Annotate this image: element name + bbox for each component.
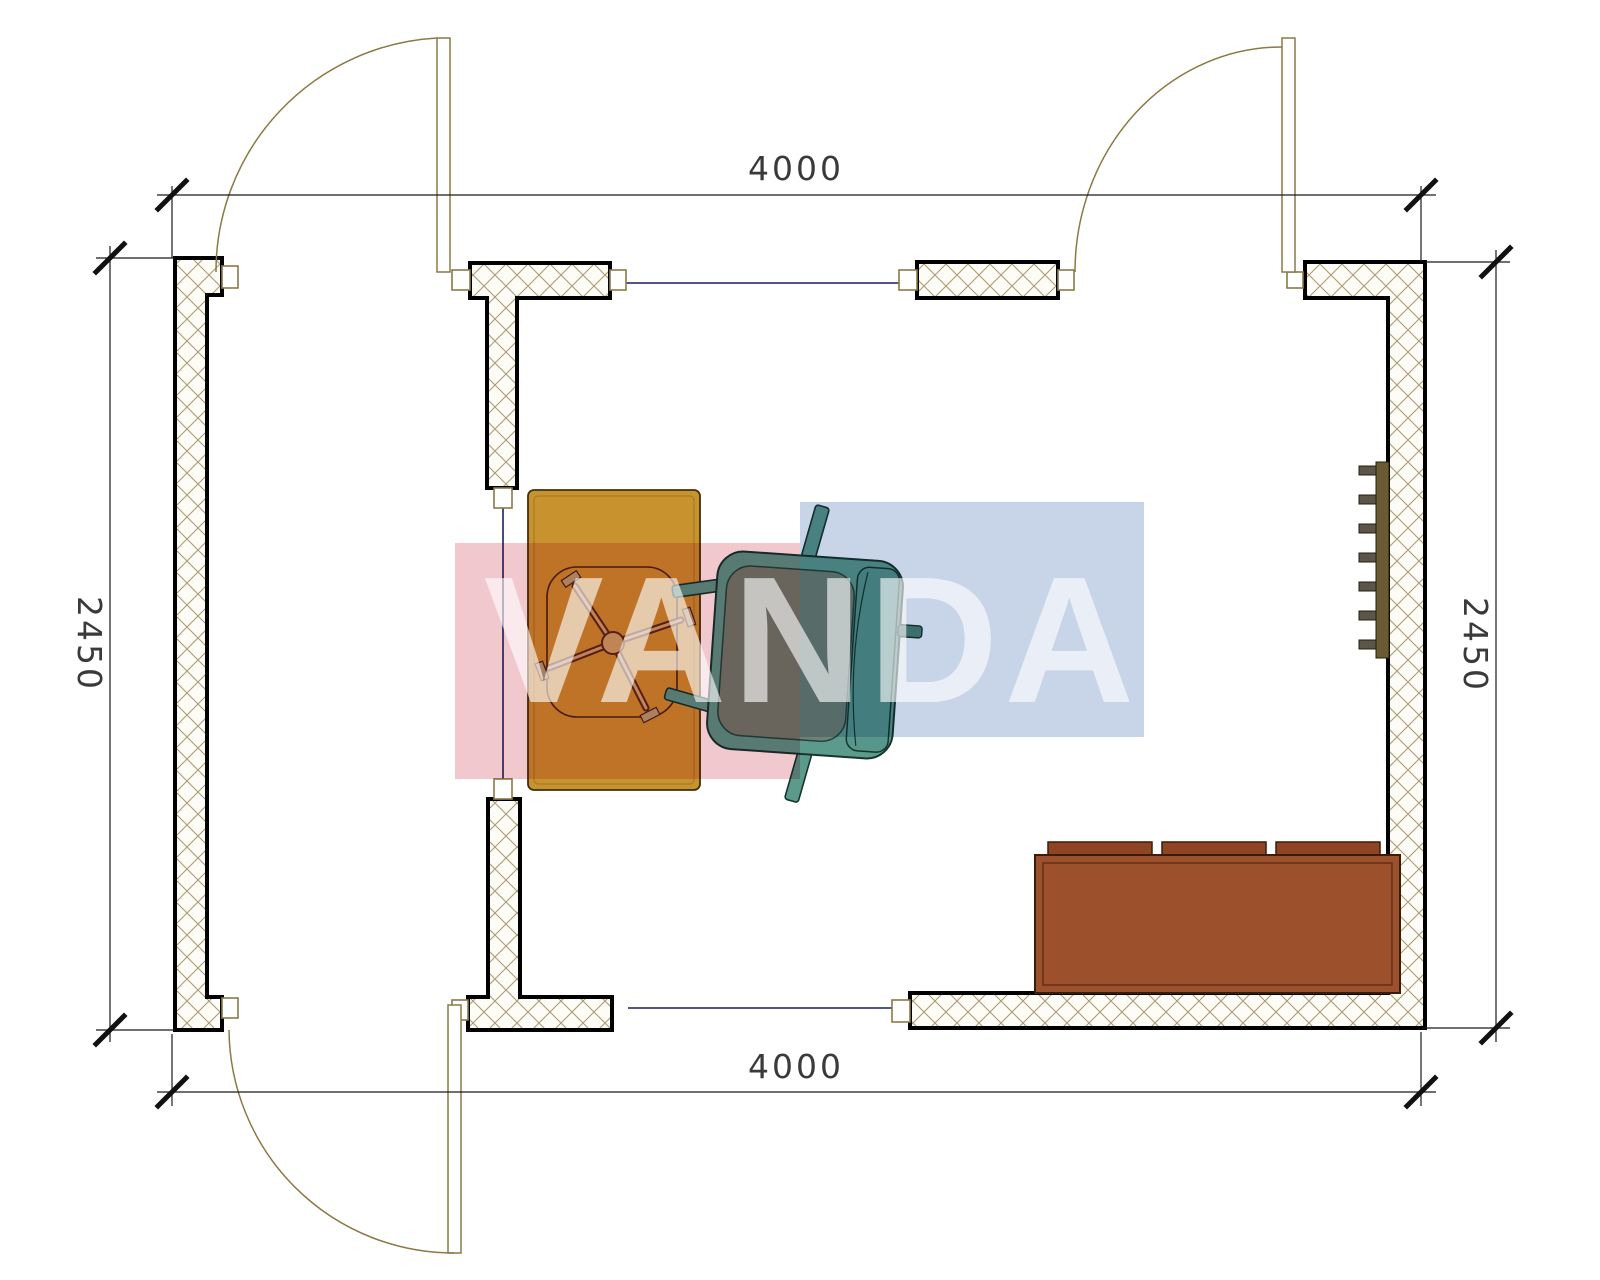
dim-label-right: 2450 xyxy=(1456,597,1495,693)
jamb xyxy=(610,270,626,290)
jamb xyxy=(1058,270,1074,290)
watermark-text: VANDA xyxy=(484,540,1141,741)
radiator-bar xyxy=(1376,462,1389,658)
dim-label-top: 4000 xyxy=(748,149,844,188)
jamb xyxy=(222,266,238,288)
top-wall-middle-segment xyxy=(917,262,1058,298)
jamb xyxy=(892,1000,910,1022)
door-leaf-top-left xyxy=(437,38,450,272)
sofa-group xyxy=(1035,842,1400,993)
floor-plan-canvas: 4000 4000 2450 2450 VANDA xyxy=(0,0,1600,1280)
jamb xyxy=(494,779,512,799)
dim-label-bottom: 4000 xyxy=(748,1047,844,1086)
jamb xyxy=(899,270,917,290)
jamb xyxy=(452,270,470,290)
jamb xyxy=(494,488,512,508)
sofa-body xyxy=(1035,855,1400,993)
door-leaf-bottom-left xyxy=(448,1005,461,1253)
floor-plan-page: 4000 4000 2450 2450 VANDA xyxy=(0,0,1600,1280)
jamb xyxy=(222,998,238,1018)
door-leaf-top-right xyxy=(1282,38,1295,272)
dim-label-left: 2450 xyxy=(70,596,109,692)
jamb xyxy=(1287,272,1303,288)
